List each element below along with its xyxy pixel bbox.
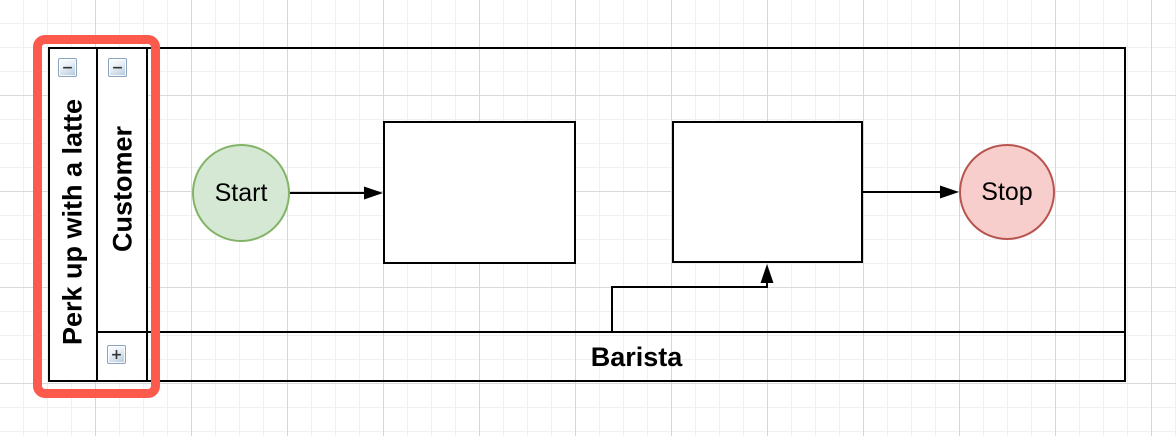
connector-start-to-task1[interactable] <box>290 187 383 200</box>
task-2[interactable] <box>672 121 863 263</box>
task-1[interactable] <box>383 121 576 264</box>
diagram-canvas: Perk up with a latte Customer Barista − … <box>0 0 1176 436</box>
stop-node-label: Stop <box>981 178 1032 207</box>
stop-node[interactable]: Stop <box>959 144 1055 240</box>
connector-task2-to-stop[interactable] <box>863 186 959 199</box>
start-node[interactable]: Start <box>192 144 290 242</box>
connector-barista-to-task2[interactable] <box>612 264 774 332</box>
start-node-label: Start <box>215 179 268 208</box>
